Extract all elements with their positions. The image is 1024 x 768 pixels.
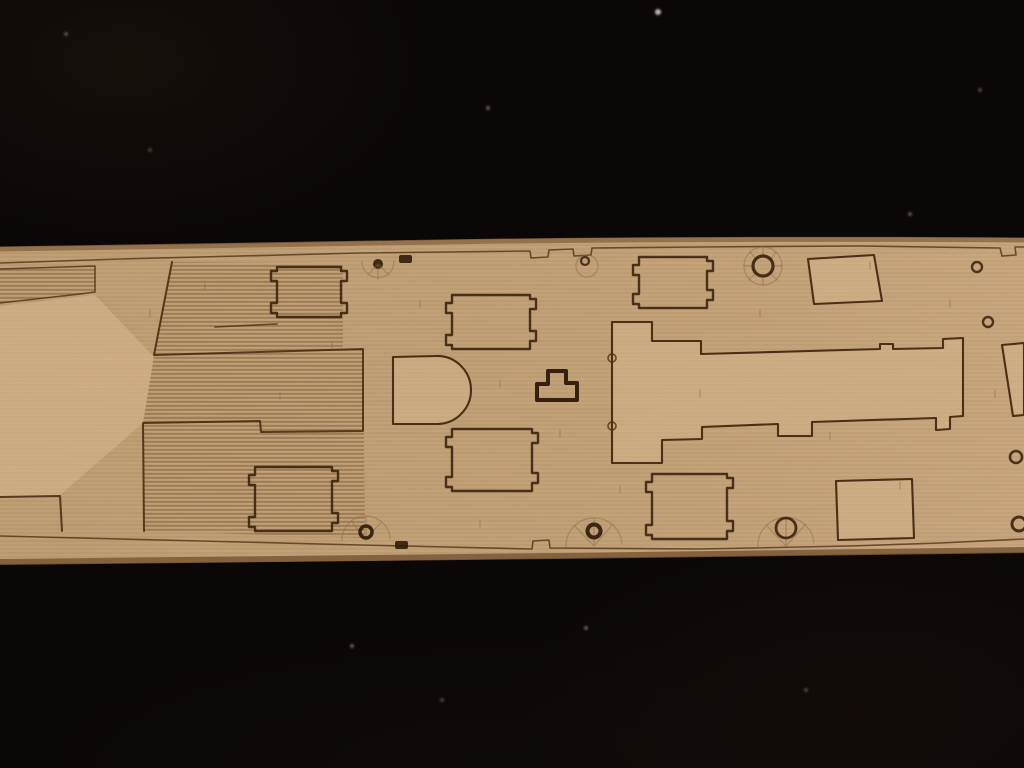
skylight-square-top-outline xyxy=(808,255,882,304)
etched-shape-layer xyxy=(0,234,1024,568)
deck-photo-svg xyxy=(0,0,1024,768)
dark-fitting-top xyxy=(399,255,412,263)
dark-fitting-bottom xyxy=(395,541,408,549)
skylight-square-bottom-outline xyxy=(836,479,914,540)
d-shaped-structure-outline xyxy=(393,356,471,424)
stripe-zone-mid-left xyxy=(154,262,343,355)
photograph-of-wooden-deck-strip xyxy=(0,0,1024,768)
